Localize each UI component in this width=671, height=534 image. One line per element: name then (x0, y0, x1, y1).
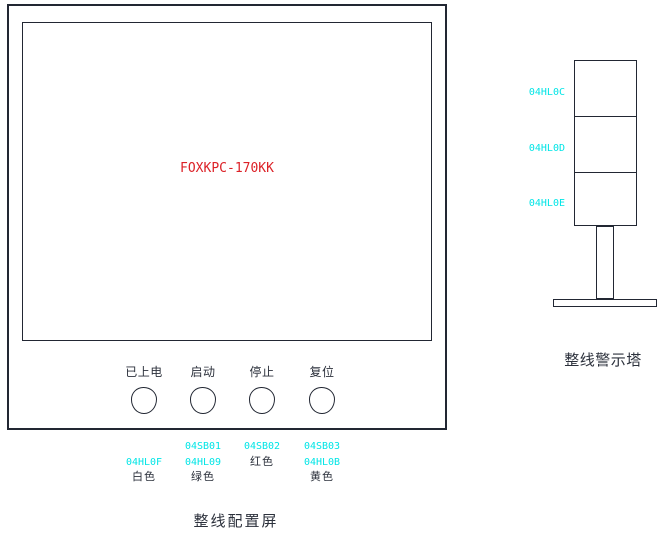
lamp-color-green: 绿色 (171, 472, 235, 483)
tag-04sb03: 04SB03 (290, 441, 354, 452)
tag-04sb02: 04SB02 (230, 441, 294, 452)
lamp-label-powered-on: 已上电 (112, 363, 176, 380)
warning-tower-body (574, 60, 637, 226)
tag-04hl0e: 04HL0E (505, 198, 565, 209)
button-label-stop: 停止 (230, 363, 294, 380)
tag-04hl0b: 04HL0B (290, 457, 354, 468)
screen-model-label: FOXKPC-170KK (22, 161, 432, 176)
tag-04hl0c: 04HL0C (505, 87, 565, 98)
tag-04hl09: 04HL09 (171, 457, 235, 468)
screen (22, 22, 432, 341)
tower-pole (596, 226, 614, 299)
button-label-reset: 复位 (290, 363, 354, 380)
tag-04hl0f: 04HL0F (112, 457, 176, 468)
warning-tower-caption: 整线警示塔 (503, 349, 671, 370)
tower-base (553, 299, 657, 307)
tag-04hl0d: 04HL0D (505, 143, 565, 154)
lamp-color-red: 红色 (230, 457, 294, 468)
tag-04sb01: 04SB01 (171, 441, 235, 452)
diagram-canvas: FOXKPC-170KK 已上电 04HL0F 白色 启动 04SB01 04H… (0, 0, 671, 534)
lamp-color-white: 白色 (112, 472, 176, 483)
lamp-color-yellow: 黄色 (290, 472, 354, 483)
button-label-start: 启动 (171, 363, 235, 380)
tower-segment-divider-2 (575, 172, 636, 174)
config-panel-caption: 整线配置屏 (136, 510, 336, 531)
tower-segment-divider-1 (575, 116, 636, 118)
